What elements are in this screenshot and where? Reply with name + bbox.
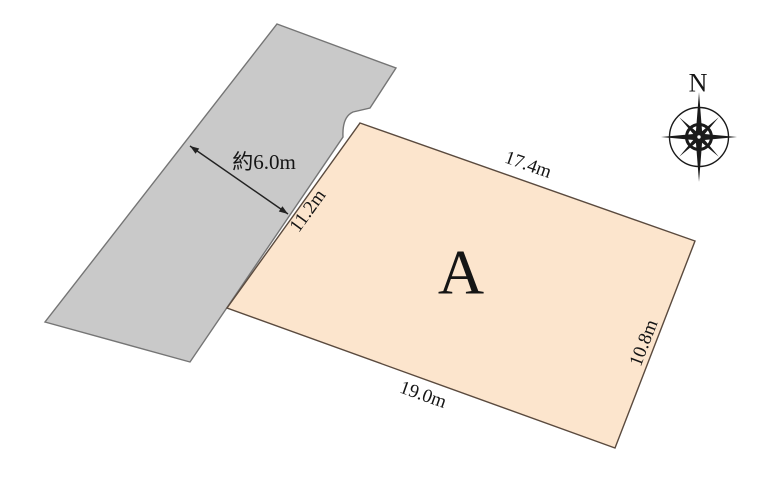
plot-label: A [438, 237, 484, 308]
compass-center-dot [697, 135, 701, 139]
land-plot-diagram: 約6.0m A 17.4m 11.2m 10.8m 19.0m N [0, 0, 760, 490]
compass-north-label: N [689, 69, 708, 98]
road-width-label: 約6.0m [232, 150, 296, 174]
compass-rose [661, 92, 737, 182]
diagram-canvas: 約6.0m A 17.4m 11.2m 10.8m 19.0m N [0, 0, 760, 490]
